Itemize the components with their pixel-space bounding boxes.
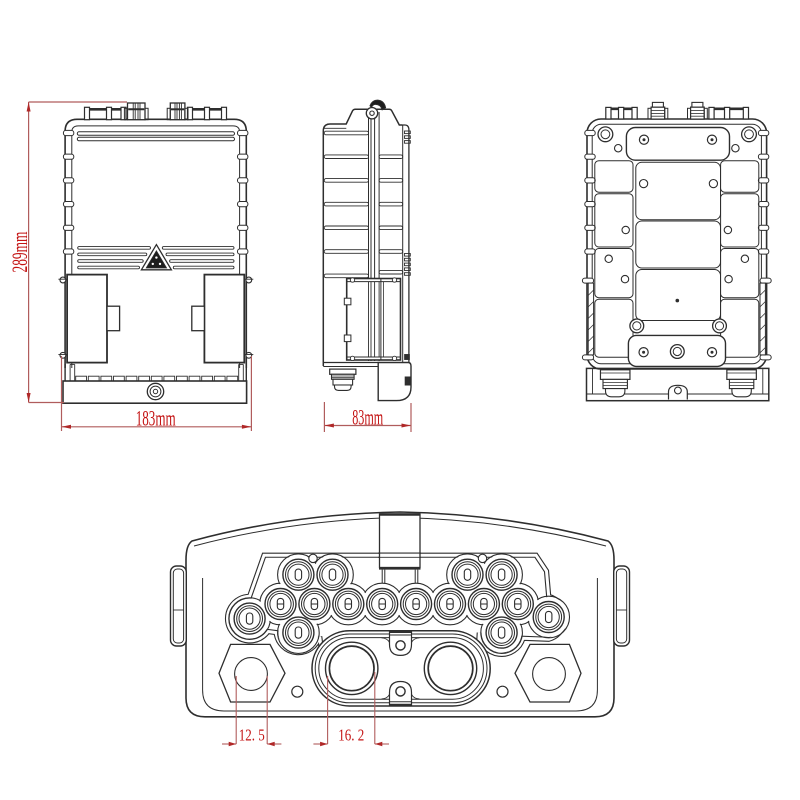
svg-text:12. 5: 12. 5: [239, 726, 265, 745]
svg-text:83mm: 83mm: [352, 404, 383, 429]
svg-text:16. 2: 16. 2: [338, 726, 364, 745]
svg-text:183mm: 183mm: [136, 406, 176, 431]
svg-text:289mm: 289mm: [7, 232, 32, 273]
